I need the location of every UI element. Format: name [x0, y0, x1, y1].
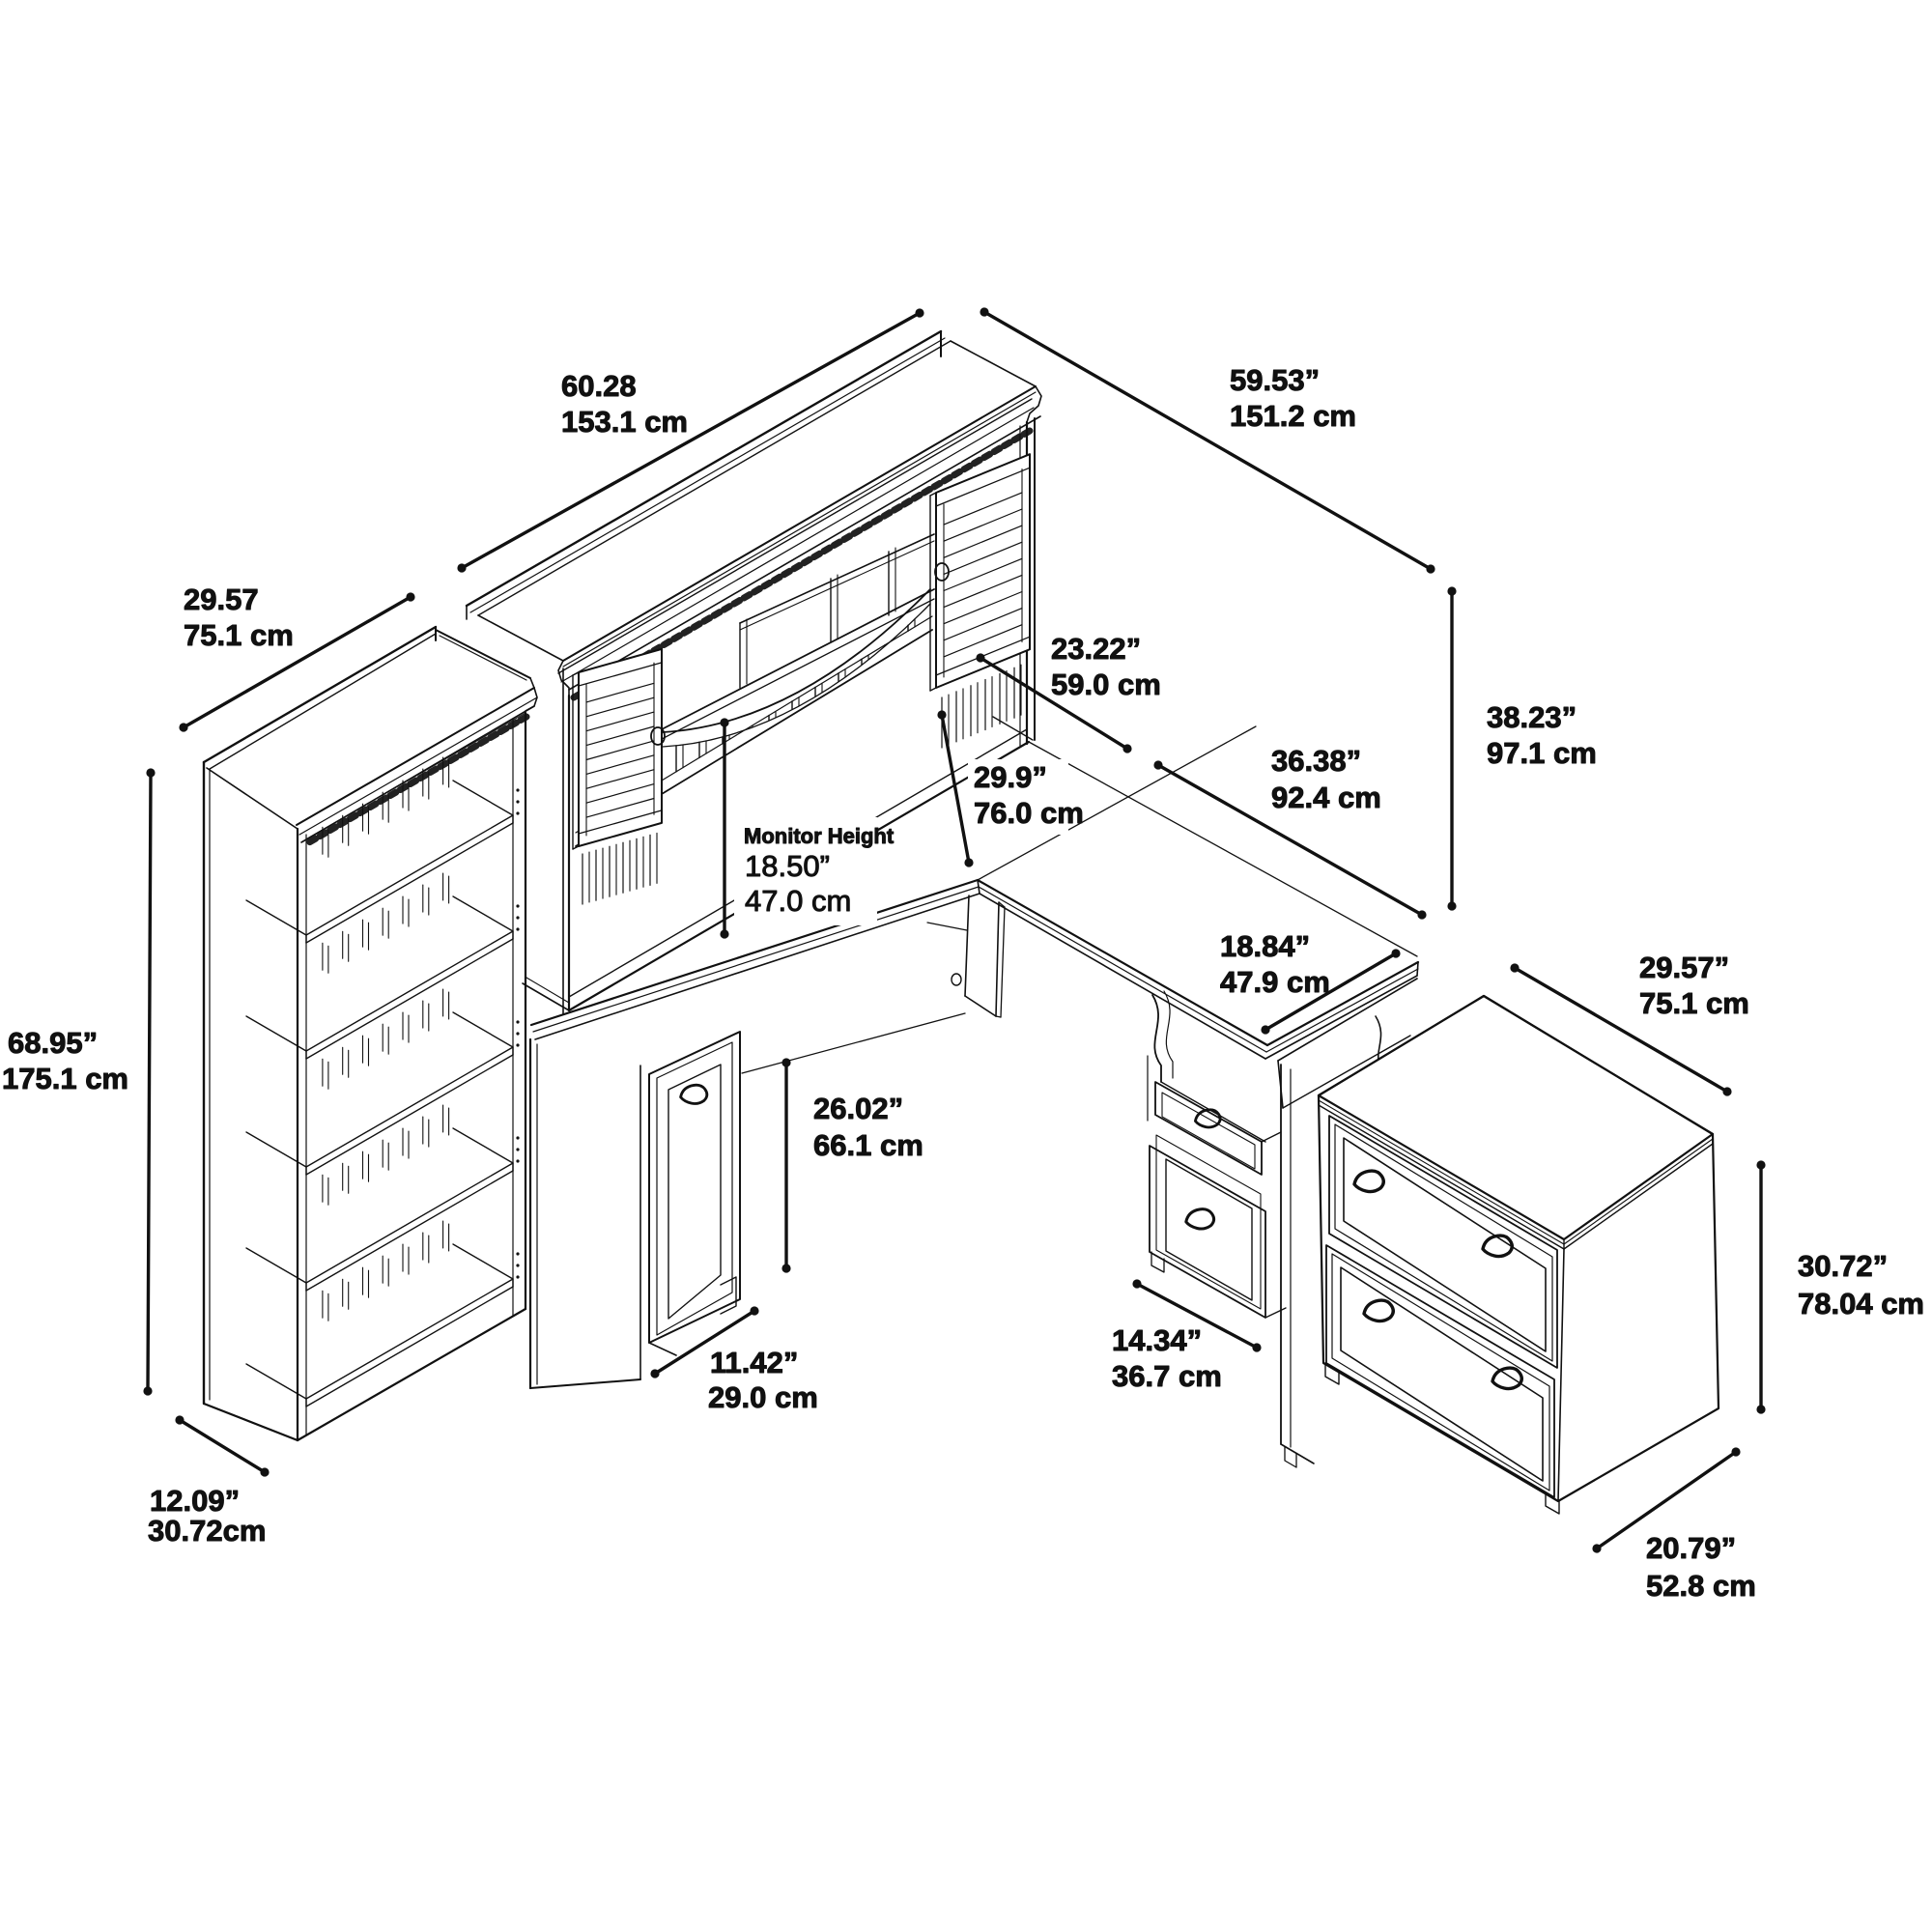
- svg-text:92.4 cm: 92.4 cm: [1271, 781, 1381, 814]
- svg-text:38.23”: 38.23”: [1487, 700, 1577, 734]
- svg-text:30.72”: 30.72”: [1798, 1249, 1888, 1283]
- svg-text:26.02”: 26.02”: [813, 1092, 903, 1125]
- svg-text:59.0 cm: 59.0 cm: [1051, 668, 1161, 701]
- svg-text:36.7 cm: 36.7 cm: [1112, 1359, 1222, 1393]
- svg-text:47.0 cm: 47.0 cm: [745, 884, 851, 918]
- svg-text:29.9”: 29.9”: [974, 760, 1047, 794]
- svg-text:29.0 cm: 29.0 cm: [708, 1380, 818, 1414]
- svg-text:153.1 cm: 153.1 cm: [561, 405, 688, 439]
- svg-text:11.42”: 11.42”: [710, 1346, 798, 1379]
- svg-text:151.2 cm: 151.2 cm: [1230, 399, 1356, 433]
- svg-text:59.53”: 59.53”: [1230, 363, 1320, 397]
- svg-text:29.57: 29.57: [184, 582, 259, 616]
- svg-text:78.04 cm: 78.04 cm: [1798, 1287, 1924, 1321]
- svg-text:60.28: 60.28: [561, 369, 637, 403]
- svg-text:18.50”: 18.50”: [745, 849, 830, 883]
- svg-text:68.95”: 68.95”: [8, 1026, 98, 1060]
- svg-text:23.22”: 23.22”: [1051, 632, 1141, 666]
- svg-text:75.1 cm: 75.1 cm: [1639, 986, 1749, 1020]
- svg-text:75.1 cm: 75.1 cm: [184, 618, 294, 652]
- svg-text:36.38”: 36.38”: [1271, 744, 1361, 778]
- svg-text:Monitor Height: Monitor Height: [744, 824, 895, 848]
- svg-text:97.1 cm: 97.1 cm: [1487, 736, 1597, 770]
- svg-text:12.09”: 12.09”: [150, 1484, 240, 1518]
- svg-text:175.1 cm: 175.1 cm: [2, 1062, 128, 1095]
- svg-text:47.9 cm: 47.9 cm: [1220, 965, 1330, 999]
- svg-text:66.1 cm: 66.1 cm: [813, 1128, 923, 1162]
- svg-text:30.72cm: 30.72cm: [148, 1514, 266, 1548]
- svg-text:20.79”: 20.79”: [1646, 1531, 1736, 1565]
- svg-text:29.57”: 29.57”: [1639, 951, 1729, 984]
- svg-text:76.0 cm: 76.0 cm: [974, 796, 1084, 830]
- svg-text:52.8 cm: 52.8 cm: [1646, 1569, 1756, 1603]
- svg-text:14.34”: 14.34”: [1112, 1323, 1202, 1357]
- svg-text:18.84”: 18.84”: [1220, 929, 1310, 963]
